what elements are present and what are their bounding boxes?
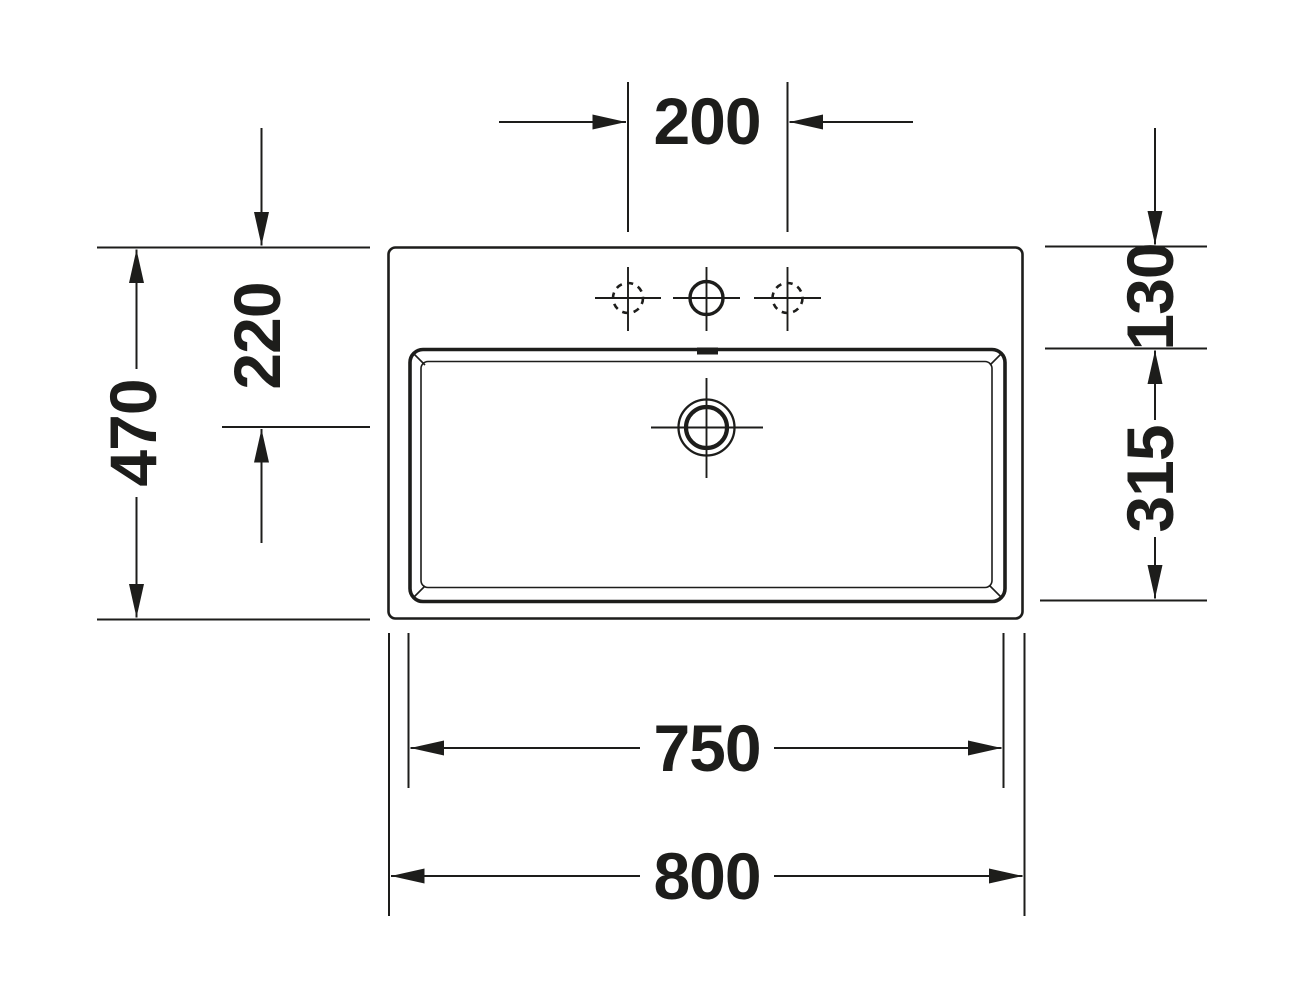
dimension-drain-from-back: 220: [220, 128, 370, 543]
faucet-hole-right-icon: [754, 267, 821, 331]
washbasin-dimension-diagram: 200 470 220 130: [0, 0, 1300, 1000]
technical-drawing-page: 200 470 220 130: [0, 0, 1300, 1000]
sink-outline: [389, 248, 1023, 619]
overflow-notch-icon: [697, 348, 718, 355]
dimension-tap-hole-spacing: 200: [499, 82, 913, 232]
dimension-basin-inner-depth: 315: [1113, 351, 1187, 599]
basin-rim: [410, 348, 1005, 602]
dim-label-drain-from-back: 220: [220, 282, 294, 389]
dim-label-back-edge-to-basin: 130: [1113, 243, 1187, 350]
dim-label-tap-hole-spacing: 200: [653, 84, 760, 158]
dim-label-basin-outer-width: 750: [653, 711, 760, 785]
dimension-back-edge-to-basin: 130: [1113, 128, 1187, 351]
dimension-basin-outer-width: 750: [409, 633, 1004, 788]
dim-label-overall-depth: 470: [96, 379, 170, 486]
faucet-hole-left-icon: [595, 267, 661, 331]
faucet-hole-center-icon: [673, 267, 740, 331]
drain-icon: [651, 378, 763, 478]
dim-label-basin-inner-depth: 315: [1113, 425, 1187, 532]
dim-label-overall-width: 800: [653, 839, 760, 913]
